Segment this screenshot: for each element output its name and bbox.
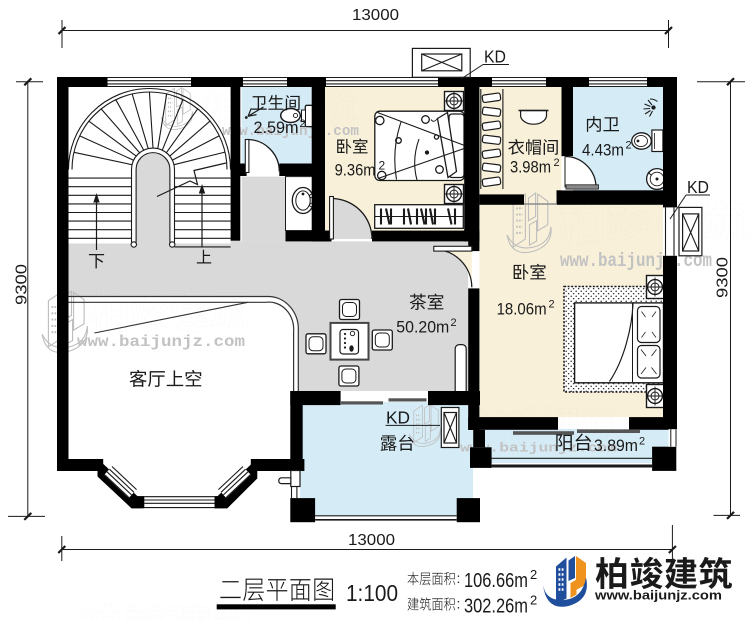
svg-text:2: 2 xyxy=(379,159,386,173)
svg-text:2: 2 xyxy=(626,140,632,152)
svg-text:18.06m: 18.06m xyxy=(497,300,547,319)
svg-text:KD: KD xyxy=(687,177,709,197)
svg-text:2: 2 xyxy=(300,118,306,130)
svg-text:2.59m: 2.59m xyxy=(254,118,299,137)
svg-text:9.36m: 9.36m xyxy=(335,161,376,180)
svg-text:3.98m: 3.98m xyxy=(510,158,551,177)
svg-text:2: 2 xyxy=(554,157,560,169)
svg-text:106.66m: 106.66m xyxy=(464,570,528,592)
svg-text:2: 2 xyxy=(530,593,537,608)
svg-text::: : xyxy=(457,570,461,586)
svg-text::: : xyxy=(457,596,461,612)
svg-text:13000: 13000 xyxy=(348,532,395,549)
svg-text:3.89m: 3.89m xyxy=(594,436,638,455)
svg-text:KD: KD xyxy=(386,408,410,428)
svg-text:4.43m: 4.43m xyxy=(582,141,624,160)
svg-text:KD: KD xyxy=(484,47,506,67)
svg-text:13000: 13000 xyxy=(352,7,399,24)
svg-text:9300: 9300 xyxy=(14,264,31,305)
svg-text:www.baijunjz.com: www.baijunjz.com xyxy=(594,588,722,603)
svg-text:2: 2 xyxy=(639,436,645,448)
svg-text:302.26m: 302.26m xyxy=(464,596,528,618)
svg-text:2: 2 xyxy=(549,299,555,311)
svg-text:9300: 9300 xyxy=(715,257,732,298)
svg-text:www.baijunjz.com: www.baijunjz.com xyxy=(77,333,245,351)
svg-text:2: 2 xyxy=(451,317,457,329)
svg-text:1:100: 1:100 xyxy=(346,580,398,606)
svg-text:2: 2 xyxy=(530,567,537,582)
svg-text:50.20m: 50.20m xyxy=(396,318,449,337)
